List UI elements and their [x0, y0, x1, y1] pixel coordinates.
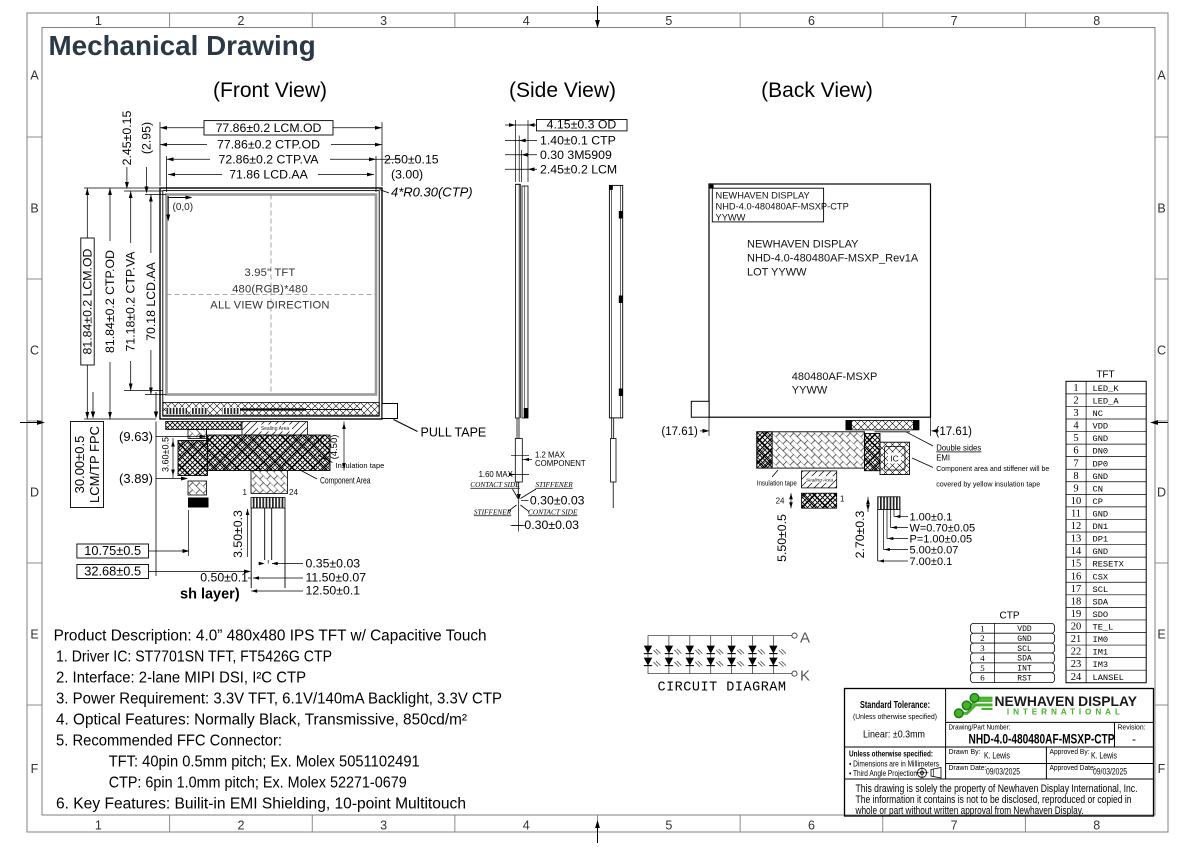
svg-text:CSX: CSX	[1093, 572, 1109, 582]
svg-text:CN: CN	[1093, 484, 1103, 494]
svg-text:5: 5	[665, 14, 672, 28]
svg-text:4.15±0.3 OD: 4.15±0.3 OD	[547, 118, 617, 132]
svg-text:15: 15	[1071, 559, 1082, 570]
svg-text:CTP: CTP	[1000, 611, 1020, 622]
svg-text:8: 8	[1093, 819, 1100, 833]
svg-text:LANSEL: LANSEL	[1093, 673, 1124, 683]
svg-text:C: C	[1157, 344, 1166, 358]
svg-text:6: 6	[808, 819, 815, 833]
svg-text:480480AF-MSXP: 480480AF-MSXP	[792, 371, 878, 383]
svg-text:LED_K: LED_K	[1093, 384, 1120, 394]
svg-text:3. Power Requirement: 3.3V TFT: 3. Power Requirement: 3.3V TFT, 6.1V/140…	[56, 691, 502, 708]
svg-text:(4.50): (4.50)	[329, 435, 340, 460]
svg-text:81.84±0.2 CTP.OD: 81.84±0.2 CTP.OD	[103, 250, 117, 353]
svg-text:GND: GND	[1093, 547, 1109, 557]
svg-text:12: 12	[1071, 521, 1082, 532]
svg-text:1.40±0.1 CTP: 1.40±0.1 CTP	[540, 134, 616, 148]
svg-text:12.50±0.1: 12.50±0.1	[306, 584, 361, 598]
svg-text:5. Recommended FFC Connector:: 5. Recommended FFC Connector:	[56, 733, 282, 750]
svg-text:7.00±0.1: 7.00±0.1	[910, 556, 953, 568]
svg-text:14: 14	[1071, 546, 1082, 557]
svg-text:81.84±0.2 LCM.OD: 81.84±0.2 LCM.OD	[80, 248, 94, 354]
svg-text:-: -	[1132, 732, 1136, 746]
svg-text:GND: GND	[1093, 472, 1109, 482]
svg-text:Linear: ±0.3mm: Linear: ±0.3mm	[863, 729, 925, 741]
svg-text:NHD-4.0-480480AF-MSXP_Rev1A: NHD-4.0-480480AF-MSXP_Rev1A	[747, 253, 919, 265]
svg-text:480(RGB)*480: 480(RGB)*480	[232, 284, 308, 296]
svg-text:2. Interface: 2-lane MIPI DSI,: 2. Interface: 2-lane MIPI DSI, I²C CTP	[56, 670, 306, 687]
svg-text:77.86±0.2 LCM.OD: 77.86±0.2 LCM.OD	[216, 121, 322, 135]
svg-text:(17.61): (17.61)	[936, 426, 973, 438]
svg-text:K: K	[800, 668, 810, 685]
svg-text:LED_A: LED_A	[1093, 396, 1120, 406]
svg-text:Component area and stiffener w: Component area and stiffener will be	[936, 464, 1049, 473]
svg-text:F: F	[31, 762, 39, 776]
svg-text:8: 8	[1093, 14, 1100, 28]
svg-text:Component Area: Component Area	[320, 476, 371, 486]
svg-text:F: F	[1158, 762, 1166, 776]
svg-text:71.18±0.2 CTP.VA: 71.18±0.2 CTP.VA	[124, 251, 138, 352]
svg-text:10.75±0.5: 10.75±0.5	[84, 543, 141, 558]
svg-text:2: 2	[237, 819, 244, 833]
svg-text:LOT YYWW: LOT YYWW	[747, 267, 807, 279]
svg-text:(3.89): (3.89)	[119, 471, 153, 486]
svg-text:5: 5	[980, 663, 985, 673]
svg-text:YYWW: YYWW	[792, 385, 828, 397]
svg-text:VDD: VDD	[1017, 625, 1032, 634]
svg-text:2: 2	[1073, 395, 1078, 406]
svg-text:3.95" TFT: 3.95" TFT	[245, 267, 296, 279]
svg-text:3.60±0.5: 3.60±0.5	[161, 437, 171, 472]
svg-text:A: A	[30, 69, 39, 83]
svg-text:TFT: 40pin 0.5mm pitch; Ex. Mo: TFT: 40pin 0.5mm pitch; Ex. Molex 505110…	[109, 754, 420, 771]
svg-text:24: 24	[1071, 672, 1082, 683]
svg-text:RESETX: RESETX	[1093, 560, 1125, 570]
svg-text:8: 8	[1073, 471, 1078, 482]
svg-text:4: 4	[1073, 421, 1079, 432]
svg-text:0.50±0.1: 0.50±0.1	[200, 571, 248, 585]
svg-text:A: A	[800, 630, 810, 647]
svg-text:3: 3	[1073, 408, 1078, 419]
svg-text:• Dimensions are in Millimeter: • Dimensions are in Millimeters	[849, 760, 939, 769]
svg-text:Revision:: Revision:	[1118, 723, 1146, 732]
svg-text:DN1: DN1	[1093, 522, 1109, 532]
svg-text:24: 24	[289, 488, 298, 497]
svg-text:Standard Tolerance:: Standard Tolerance:	[860, 700, 930, 711]
svg-text:1: 1	[840, 495, 845, 504]
svg-text:PULL TAPE: PULL TAPE	[421, 426, 487, 440]
svg-text:covered by yellow insulation t: covered by yellow insulation tape	[936, 480, 1040, 489]
svg-text:(2.95): (2.95)	[140, 122, 154, 154]
svg-text:EMI: EMI	[936, 454, 950, 463]
svg-text:(17.61): (17.61)	[661, 426, 698, 438]
svg-text:2.45±0.15: 2.45±0.15	[120, 111, 134, 166]
svg-text:whole or part without written: whole or part without written approval f…	[855, 805, 1084, 817]
svg-text:(3.00): (3.00)	[391, 168, 423, 182]
svg-text:DP0: DP0	[1093, 459, 1109, 469]
svg-text:E: E	[1157, 628, 1165, 642]
svg-text:19: 19	[1071, 609, 1082, 620]
svg-text:D: D	[30, 486, 39, 500]
svg-text:7: 7	[951, 819, 958, 833]
svg-text:SCL: SCL	[1093, 585, 1109, 595]
svg-text:Drawn By:: Drawn By:	[949, 747, 981, 756]
svg-text:INTERNATIONAL: INTERNATIONAL	[1007, 708, 1124, 717]
svg-text:SDO: SDO	[1093, 610, 1109, 620]
svg-text:Approved By:: Approved By:	[1050, 747, 1090, 756]
svg-text:1: 1	[243, 488, 248, 497]
svg-text:1: 1	[95, 14, 102, 28]
svg-text:77.86±0.2 CTP.OD: 77.86±0.2 CTP.OD	[217, 138, 320, 152]
svg-text:SCL: SCL	[1017, 645, 1032, 654]
svg-text:(Side View): (Side View)	[509, 79, 616, 102]
svg-text:STIFFENER: STIFFENER	[535, 480, 573, 489]
svg-text:11.50±0.07: 11.50±0.07	[306, 571, 367, 585]
svg-text:NHD-4.0-480480AF-MSXP-CTP: NHD-4.0-480480AF-MSXP-CTP	[716, 201, 849, 211]
svg-text:5: 5	[1073, 433, 1078, 444]
svg-text:7: 7	[951, 14, 958, 28]
svg-text:NEWHAVEN DISPLAY: NEWHAVEN DISPLAY	[995, 693, 1138, 709]
svg-text:7: 7	[1073, 458, 1078, 469]
svg-text:D: D	[1157, 486, 1166, 500]
svg-text:DN0: DN0	[1093, 447, 1109, 457]
svg-text:4. Optical Features: Normally: 4. Optical Features: Normally Black, Tra…	[56, 712, 467, 729]
svg-text:CIRCUIT DIAGRAM: CIRCUIT DIAGRAM	[657, 681, 786, 696]
svg-text:This drawing is solely the pro: This drawing is solely the property of N…	[856, 783, 1138, 795]
svg-text:B: B	[1157, 202, 1165, 216]
svg-text:TE_L: TE_L	[1093, 623, 1114, 633]
svg-text:09/03/2025: 09/03/2025	[1093, 766, 1127, 776]
svg-text:CP: CP	[1093, 497, 1103, 507]
svg-text:Unless otherwise specified:: Unless otherwise specified:	[849, 750, 933, 759]
svg-text:3.50±0.3: 3.50±0.3	[231, 510, 245, 558]
svg-text:Double sides: Double sides	[936, 444, 981, 453]
svg-text:1: 1	[980, 623, 984, 633]
svg-text:2: 2	[237, 14, 244, 28]
svg-text:SDA: SDA	[1017, 655, 1032, 664]
svg-text:5: 5	[665, 819, 672, 833]
svg-text:5.00±0.07: 5.00±0.07	[910, 544, 959, 556]
svg-text:0.35±0.03: 0.35±0.03	[306, 557, 361, 571]
svg-text:(Unless otherwise specified): (Unless otherwise specified)	[853, 712, 937, 721]
svg-text:71.86 LCD.AA: 71.86 LCD.AA	[229, 168, 308, 182]
svg-text:70.18 LCD.AA: 70.18 LCD.AA	[144, 261, 158, 340]
svg-text:LCM/TP FPC: LCM/TP FPC	[87, 426, 102, 503]
svg-text:NEWHAVEN DISPLAY: NEWHAVEN DISPLAY	[716, 190, 810, 200]
svg-text:sh layer): sh layer)	[180, 587, 240, 603]
svg-text:2.50±0.15: 2.50±0.15	[384, 152, 439, 166]
svg-text:23: 23	[1071, 659, 1082, 670]
svg-text:GND: GND	[1093, 510, 1109, 520]
svg-text:Sealing Area: Sealing Area	[261, 426, 290, 432]
svg-text:6: 6	[1073, 446, 1078, 457]
svg-text:CN: CN	[314, 440, 323, 446]
svg-text:E: E	[30, 628, 38, 642]
svg-text:(Front View): (Front View)	[213, 79, 327, 102]
svg-text:1: 1	[1073, 383, 1078, 394]
svg-text:3: 3	[980, 643, 985, 653]
svg-text:0.30 3M5909: 0.30 3M5909	[540, 148, 612, 162]
svg-text:(Back View): (Back View)	[761, 79, 873, 102]
svg-text:NEWHAVEN DISPLAY: NEWHAVEN DISPLAY	[747, 239, 859, 251]
svg-text:1. Driver IC: ST7701SN TFT, FT: 1. Driver IC: ST7701SN TFT, FT5426G CTP	[56, 649, 332, 666]
svg-text:72.86±0.2 CTP.VA: 72.86±0.2 CTP.VA	[219, 152, 320, 166]
svg-text:CONTACT SIDE: CONTACT SIDE	[528, 507, 578, 516]
svg-text:A: A	[1157, 69, 1166, 83]
svg-text:21: 21	[1071, 634, 1082, 645]
svg-text:C: C	[30, 344, 39, 358]
svg-text:YYWW: YYWW	[716, 212, 746, 222]
svg-text:6: 6	[808, 14, 815, 28]
svg-text:13: 13	[1071, 534, 1082, 545]
svg-text:4: 4	[523, 14, 530, 28]
svg-text:2: 2	[980, 633, 984, 643]
svg-text:IM1: IM1	[1093, 648, 1109, 658]
svg-text:ALL VIEW DIRECTION: ALL VIEW DIRECTION	[210, 300, 329, 312]
svg-text:K. Lewis: K. Lewis	[984, 750, 1010, 760]
svg-text:GND: GND	[1093, 434, 1109, 444]
svg-text:Insulation tape: Insulation tape	[336, 461, 385, 470]
svg-text:24: 24	[776, 497, 785, 506]
svg-text:Approved Date:: Approved Date:	[1050, 763, 1096, 772]
svg-text:SDA: SDA	[1093, 597, 1109, 607]
svg-text:1.60 MAX: 1.60 MAX	[479, 470, 514, 479]
svg-text:1: 1	[95, 819, 102, 833]
svg-text:B: B	[30, 202, 38, 216]
svg-text:4: 4	[523, 819, 530, 833]
svg-text:5.50±0.5: 5.50±0.5	[775, 514, 789, 562]
svg-text:K. Lewis: K. Lewis	[1091, 750, 1117, 760]
svg-text:10: 10	[1071, 496, 1082, 507]
svg-text:Mechanical Drawing: Mechanical Drawing	[49, 30, 316, 61]
svg-text:30.00±0.5: 30.00±0.5	[72, 436, 87, 494]
svg-text:09/03/2025: 09/03/2025	[986, 766, 1020, 776]
svg-text:18: 18	[1071, 596, 1082, 607]
svg-text:NHD-4.0-480480AF-MSXP-CTP: NHD-4.0-480480AF-MSXP-CTP	[969, 731, 1115, 747]
svg-text:11: 11	[1071, 509, 1081, 520]
svg-text:IM3: IM3	[1093, 660, 1109, 670]
svg-text:(0,0): (0,0)	[173, 202, 194, 213]
svg-text:TFT: TFT	[1096, 370, 1114, 381]
svg-text:Insulation tape: Insulation tape	[757, 479, 797, 488]
svg-text:GND: GND	[1017, 635, 1032, 644]
svg-text:3: 3	[380, 819, 387, 833]
svg-text:IM0: IM0	[1093, 635, 1109, 645]
svg-text:(9.63): (9.63)	[119, 429, 153, 444]
svg-text:20: 20	[1071, 622, 1082, 633]
svg-text:2.45±0.2 LCM: 2.45±0.2 LCM	[540, 162, 617, 176]
svg-text:3: 3	[380, 14, 387, 28]
svg-text:9: 9	[1073, 483, 1078, 494]
svg-text:16: 16	[1071, 571, 1082, 582]
svg-text:2.70±0.3: 2.70±0.3	[853, 510, 867, 558]
svg-text:6: 6	[980, 673, 985, 683]
svg-text:Drawn Date:: Drawn Date:	[949, 763, 987, 772]
svg-text:VDD: VDD	[1093, 422, 1109, 432]
svg-text:0.30±0.03: 0.30±0.03	[530, 493, 585, 507]
svg-text:STIFFENER: STIFFENER	[474, 507, 512, 516]
svg-text:DP1: DP1	[1093, 535, 1109, 545]
svg-text:CONTACT SIDE: CONTACT SIDE	[470, 480, 520, 489]
svg-text:Product Description: 4.0” 480x: Product Description: 4.0” 480x480 IPS TF…	[54, 628, 487, 645]
svg-text:Sealing Area: Sealing Area	[806, 478, 834, 484]
svg-text:NC: NC	[1093, 409, 1103, 419]
svg-text:22: 22	[1071, 647, 1082, 658]
svg-text:17: 17	[1071, 584, 1082, 595]
svg-text:4*R0.30(CTP): 4*R0.30(CTP)	[391, 185, 473, 200]
svg-text:COMPONENT: COMPONENT	[535, 459, 586, 468]
svg-text:0.30±0.03: 0.30±0.03	[524, 518, 579, 532]
svg-text:32.68±0.5: 32.68±0.5	[84, 564, 141, 579]
svg-text:RST: RST	[1017, 674, 1032, 683]
svg-text:4: 4	[980, 653, 985, 663]
svg-text:CTP: 6pin 1.0mm pitch; Ex. Mol: CTP: 6pin 1.0mm pitch; Ex. Molex 52271-0…	[109, 775, 407, 792]
svg-text:INT: INT	[1017, 665, 1032, 674]
svg-text:6. Key Features: Builit-in EMI: 6. Key Features: Builit-in EMI Shielding…	[56, 796, 466, 813]
svg-text:IC: IC	[890, 454, 899, 464]
svg-text:• Third Angle Projection: • Third Angle Projection	[849, 769, 917, 778]
